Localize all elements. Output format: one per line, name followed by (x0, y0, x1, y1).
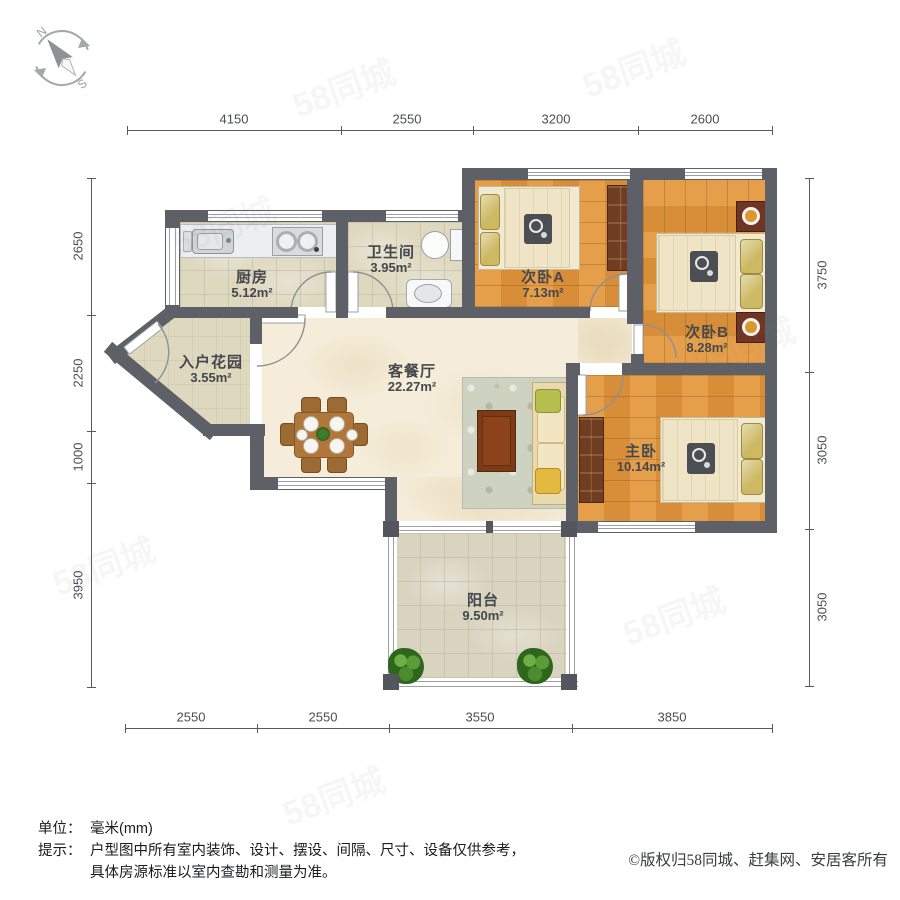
room-name: 阳台 (462, 592, 503, 609)
wall (622, 363, 777, 375)
tip-text-line2: 具体房源标准以室内查勘和测量为准。 (90, 865, 337, 881)
balcony-plant (517, 648, 553, 684)
room-area: 22.27m² (388, 380, 436, 395)
window (685, 169, 762, 179)
wall (386, 307, 475, 318)
garden-door-arc (257, 318, 305, 366)
tip-label: 提示： (38, 840, 90, 862)
room-name: 卫生间 (367, 244, 415, 261)
room-area: 9.50m² (462, 609, 503, 624)
compass-arrow-icon (78, 38, 90, 48)
bathroom-label: 卫生间 3.95m² (367, 244, 415, 276)
floor-plan-page: N S 厨房 5.12m² 卫生间 3.95m² (0, 0, 900, 900)
wall (462, 180, 475, 318)
balcony-post (561, 674, 577, 690)
room-area: 5.12m² (231, 286, 272, 301)
tip-text-line1: 户型图中所有室内装饰、设计、摆设、间隔、尺寸、设备仅供参考， (90, 843, 525, 859)
compass-south-label: S (75, 76, 90, 92)
wall (336, 222, 348, 307)
wall (566, 363, 580, 375)
bathroom-door (348, 272, 358, 312)
balcony-sliding-door (396, 521, 566, 533)
wall (250, 318, 262, 344)
window (528, 169, 630, 179)
room-name: 次卧A (521, 269, 565, 286)
bedroom-b-door-arc (643, 325, 676, 358)
kitchen-label: 厨房 5.12m² (231, 269, 272, 301)
room-area: 3.55m² (179, 371, 243, 386)
balcony-post (383, 674, 399, 690)
master-door-arc (583, 375, 623, 415)
balcony-rail (566, 533, 578, 678)
room-name: 入户花园 (179, 354, 243, 371)
unit-value: 毫米(mm) (90, 821, 153, 837)
room-area: 7.13m² (521, 286, 565, 301)
window (386, 211, 458, 221)
wall (336, 307, 348, 318)
window (208, 211, 322, 221)
living-dining-label: 客餐厅 22.27m² (388, 363, 436, 395)
room-name: 主卧 (617, 443, 665, 460)
window (166, 228, 179, 305)
wall (165, 307, 298, 318)
compass-north-label: N (34, 24, 49, 40)
room-name: 厨房 (231, 269, 272, 286)
copyright-text: ©版权归58同城、赶集网、安居客所有 (628, 848, 888, 870)
master-door (577, 375, 586, 415)
room-name: 客餐厅 (388, 363, 436, 380)
wall (765, 168, 777, 533)
tip-note-line2: 具体房源标准以室内查勘和测量为准。 (38, 862, 525, 884)
tip-note: 提示：户型图中所有室内装饰、设计、摆设、间隔、尺寸、设备仅供参考， (38, 840, 525, 862)
bedroom-b-label: 次卧B 8.28m² (685, 324, 729, 356)
kitchen-door-arc (291, 272, 331, 312)
room-area: 3.95m² (367, 261, 415, 276)
room-area: 8.28m² (685, 341, 729, 356)
unit-label: 单位： (38, 818, 90, 840)
footer-notes: 单位：毫米(mm) 提示：户型图中所有室内装饰、设计、摆设、间隔、尺寸、设备仅供… (38, 818, 525, 884)
window (598, 522, 695, 532)
bathroom-door-arc (353, 272, 393, 312)
unit-note: 单位：毫米(mm) (38, 818, 525, 840)
room-name: 次卧B (685, 324, 729, 341)
wall (627, 180, 643, 324)
balcony-label: 阳台 9.50m² (462, 592, 503, 624)
wall (475, 307, 590, 318)
sliding-door-divider (486, 521, 493, 533)
balcony-post (383, 521, 399, 537)
compass: N S (25, 21, 99, 95)
window (278, 478, 385, 489)
compass-arrow-icon (34, 68, 46, 78)
bedroom-a-label: 次卧A 7.13m² (521, 269, 565, 301)
entry-garden-label: 入户花园 3.55m² (179, 354, 243, 386)
wall (566, 375, 578, 521)
kitchen-door (326, 272, 336, 312)
master-bedroom-label: 主卧 10.14m² (617, 443, 665, 475)
balcony-post (561, 521, 577, 537)
room-area: 10.14m² (617, 460, 665, 475)
